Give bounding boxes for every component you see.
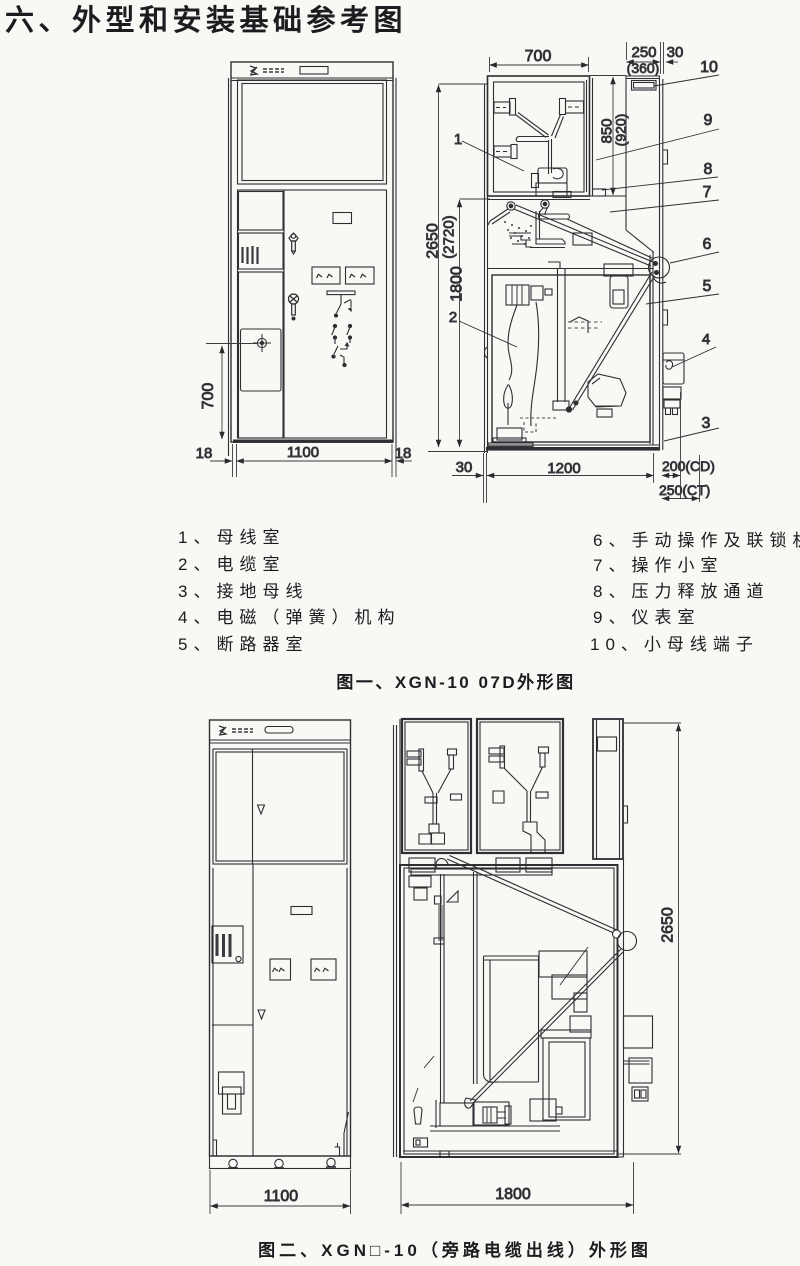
svg-text:1: 1 bbox=[454, 131, 462, 148]
svg-text:1200: 1200 bbox=[547, 460, 580, 477]
svg-text:700: 700 bbox=[525, 48, 552, 65]
svg-text:图一、XGN-10 07D外形图: 图一、XGN-10 07D外形图 bbox=[336, 672, 575, 692]
svg-text:3、接地母线: 3、接地母线 bbox=[178, 582, 308, 601]
svg-text:9、仪表室: 9、仪表室 bbox=[593, 608, 700, 627]
svg-text:图二、XGN□-10（旁路电缆出线）外形图: 图二、XGN□-10（旁路电缆出线）外形图 bbox=[258, 1240, 652, 1260]
svg-text:200(CD): 200(CD) bbox=[662, 458, 715, 474]
svg-text:4: 4 bbox=[702, 331, 710, 348]
svg-text:18: 18 bbox=[196, 445, 213, 462]
svg-text:250: 250 bbox=[631, 44, 656, 61]
svg-text:250(CT): 250(CT) bbox=[659, 482, 710, 498]
svg-text:六、外型和安装基础参考图: 六、外型和安装基础参考图 bbox=[5, 3, 407, 37]
svg-text:9: 9 bbox=[704, 112, 713, 129]
svg-text:8: 8 bbox=[704, 161, 713, 178]
svg-text:18: 18 bbox=[395, 445, 412, 462]
svg-text:2650: 2650 bbox=[425, 223, 442, 259]
svg-text:(360): (360) bbox=[627, 60, 660, 76]
svg-text:1800: 1800 bbox=[449, 266, 466, 302]
svg-text:2: 2 bbox=[449, 309, 457, 326]
svg-text:(2720): (2720) bbox=[441, 215, 458, 258]
svg-text:1、母线室: 1、母线室 bbox=[178, 528, 285, 547]
svg-text:700: 700 bbox=[200, 383, 217, 410]
svg-text:8、压力释放通道: 8、压力释放通道 bbox=[593, 582, 769, 601]
svg-text:6: 6 bbox=[703, 236, 712, 253]
svg-text:2650: 2650 bbox=[660, 907, 677, 943]
svg-text:1100: 1100 bbox=[287, 444, 319, 461]
svg-text:5: 5 bbox=[703, 278, 712, 295]
svg-text:4、电磁（弹簧）机构: 4、电磁（弹簧）机构 bbox=[178, 608, 400, 627]
svg-text:10: 10 bbox=[700, 59, 718, 76]
svg-text:1100: 1100 bbox=[264, 1188, 299, 1205]
svg-text:7、操作小室: 7、操作小室 bbox=[593, 556, 723, 575]
svg-text:2、电缆室: 2、电缆室 bbox=[178, 555, 285, 574]
svg-text:3: 3 bbox=[702, 415, 711, 432]
svg-text:30: 30 bbox=[667, 44, 684, 61]
svg-text:30: 30 bbox=[456, 459, 473, 476]
svg-text:(920): (920) bbox=[613, 114, 629, 147]
svg-text:6、手动操作及联锁机构: 6、手动操作及联锁机构 bbox=[593, 531, 800, 550]
svg-text:10、小母线端子: 10、小母线端子 bbox=[590, 635, 759, 654]
svg-text:7: 7 bbox=[703, 184, 712, 201]
svg-text:5、断路器室: 5、断路器室 bbox=[178, 635, 308, 654]
svg-text:1800: 1800 bbox=[495, 1186, 531, 1203]
